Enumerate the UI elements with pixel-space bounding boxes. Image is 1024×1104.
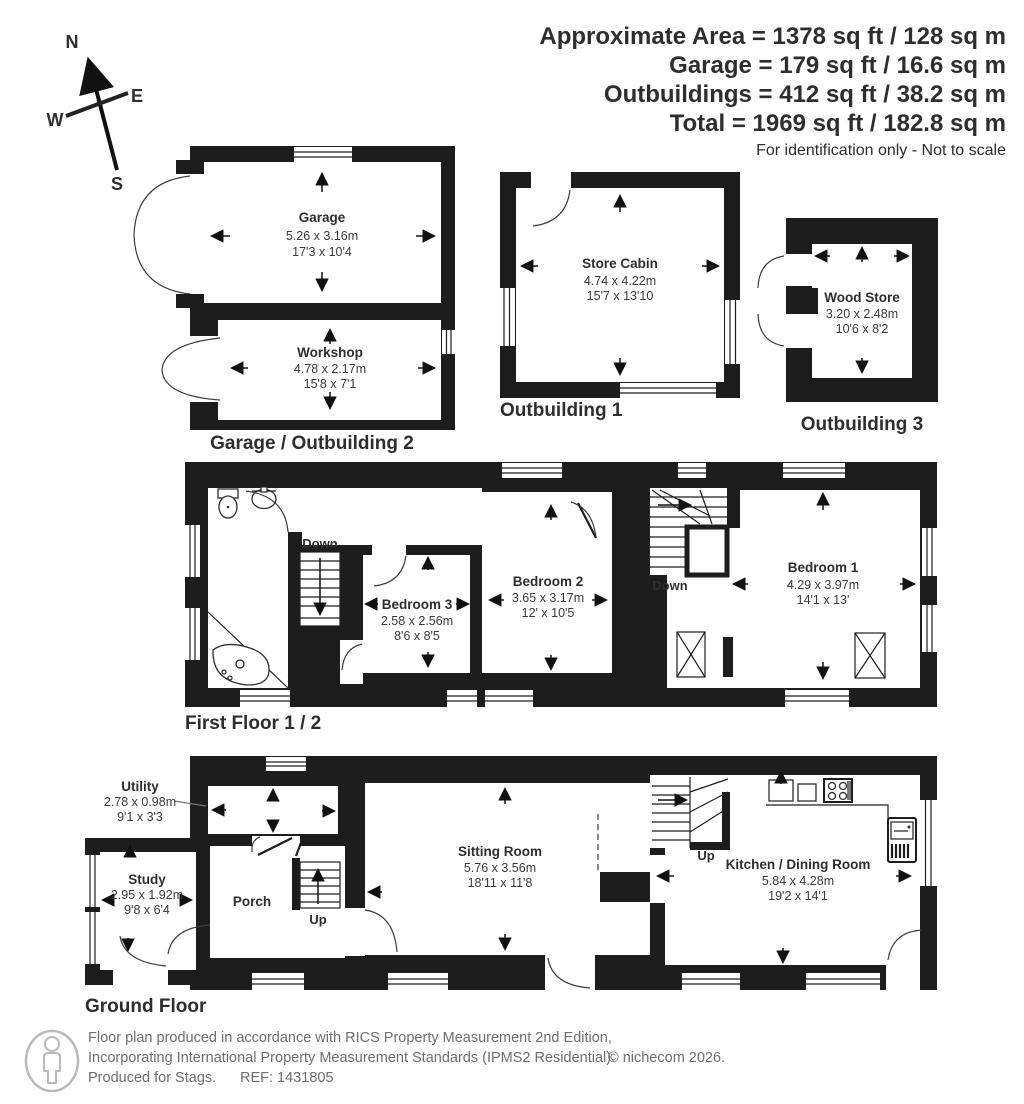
wood-store-door-arc — [758, 256, 784, 288]
window — [783, 463, 845, 478]
window — [252, 973, 304, 990]
first-floor-label: First Floor 1 / 2 — [185, 713, 321, 734]
window — [785, 690, 849, 707]
outbuilding3-plan: Wood Store 3.20 x 2.48m 10'6 x 8'2 Outbu… — [758, 218, 938, 435]
kitchen-metric-label: 5.84 x 4.28m — [762, 874, 834, 888]
approx-area-line: Approximate Area = 1378 sq ft / 128 sq m — [539, 23, 1006, 50]
outbuilding1-plan: Store Cabin 4.74 x 4.22m 15'7 x 13'10 Ou… — [499, 168, 741, 421]
garage-block-label: Garage / Outbuilding 2 — [210, 433, 414, 454]
window — [85, 912, 100, 964]
window — [447, 690, 477, 707]
bedroom3-imperial-label: 8'6 x 8'5 — [394, 629, 440, 643]
window — [678, 463, 706, 478]
store-cabin-imperial-label: 15'7 x 13'10 — [587, 289, 654, 303]
wardrobe-box — [855, 633, 885, 678]
window — [806, 973, 880, 990]
ground-floor-label: Ground Floor — [85, 996, 207, 1017]
bedroom2-imperial-label: 12' x 10'5 — [522, 606, 575, 620]
toilet-icon — [218, 489, 238, 518]
window — [266, 757, 306, 771]
outbuildings-area-line: Outbuildings = 412 sq ft / 38.2 sq m — [604, 81, 1006, 108]
floorplan-canvas: N E W S Approximate Area = 1378 sq ft / … — [0, 0, 1024, 1104]
window — [682, 973, 740, 990]
utility-metric-label: 2.78 x 0.98m — [104, 795, 176, 809]
kitchen-name-label: Kitchen / Dining Room — [726, 857, 871, 872]
window — [240, 690, 290, 707]
garage-outbuilding2-plan: Garage 5.26 x 3.16m 17'3 x 10'4 Workshop… — [134, 146, 456, 454]
workshop-name-label: Workshop — [297, 345, 363, 360]
floorplan-page: N E W S Approximate Area = 1378 sq ft / … — [0, 0, 1024, 1104]
study-imperial-label: 9'8 x 6'4 — [124, 903, 170, 917]
bedroom1-name-label: Bedroom 1 — [788, 560, 859, 575]
study-metric-label: 2.95 x 1.92m — [111, 888, 183, 902]
sink-unit-icon — [888, 818, 916, 862]
garage-door-arc — [134, 176, 190, 235]
area-summary: Approximate Area = 1378 sq ft / 128 sq m… — [539, 23, 1006, 159]
disclaimer-line: For identification only - Not to scale — [756, 142, 1006, 159]
bedroom2-metric-label: 3.65 x 3.17m — [512, 591, 584, 605]
window — [725, 300, 741, 364]
footer-line2: Incorporating International Property Mea… — [88, 1050, 615, 1066]
first-floor-plan: Down Down — [185, 462, 937, 734]
wood-store-imperial-label: 10'6 x 8'2 — [836, 322, 889, 336]
wood-store-metric-label: 3.20 x 2.48m — [826, 307, 898, 321]
total-area-line: Total = 1969 sq ft / 182.8 sq m — [670, 110, 1006, 137]
sitting-name-label: Sitting Room — [458, 844, 542, 859]
window — [85, 855, 100, 907]
store-cabin-metric-label: 4.74 x 4.22m — [584, 274, 656, 288]
outbuilding1-label: Outbuilding 1 — [500, 400, 623, 421]
study-name-label: Study — [128, 872, 166, 887]
window — [185, 525, 200, 577]
garage-name-label: Garage — [299, 210, 346, 225]
person-scale-icon — [26, 1031, 78, 1091]
window — [922, 528, 937, 576]
footer: Floor plan produced in accordance with R… — [26, 1030, 725, 1091]
compass-south: S — [111, 174, 123, 194]
window — [294, 147, 352, 162]
window — [502, 463, 562, 478]
utility-name-label: Utility — [121, 779, 159, 794]
bedroom1-imperial-label: 14'1 x 13' — [797, 593, 850, 607]
window — [388, 973, 448, 990]
garage-door-arc — [134, 235, 190, 294]
footer-ref: REF: 1431805 — [240, 1070, 334, 1086]
sitting-metric-label: 5.76 x 3.56m — [464, 861, 536, 875]
window — [442, 330, 456, 354]
bedroom2-name-label: Bedroom 2 — [513, 574, 584, 589]
wardrobe-box — [677, 632, 705, 677]
bedroom3-metric-label: 2.58 x 2.56m — [381, 614, 453, 628]
kitchen-imperial-label: 19'2 x 14'1 — [768, 889, 828, 903]
outbuilding3-label: Outbuilding 3 — [801, 414, 923, 435]
wood-store-door-arc — [758, 314, 784, 346]
porch-name-label: Porch — [233, 894, 271, 909]
compass-west: W — [47, 110, 64, 130]
garage-imperial-label: 17'3 x 10'4 — [292, 245, 352, 259]
footer-produced: Produced for Stags. — [88, 1070, 216, 1086]
bedroom1-metric-label: 4.29 x 3.97m — [787, 578, 859, 592]
footer-copyright: © nichecom 2026. — [608, 1050, 725, 1066]
garage-area-line: Garage = 179 sq ft / 16.6 sq m — [669, 52, 1006, 79]
bedroom3-name-label: Bedroom 3 — [382, 597, 453, 612]
window — [185, 608, 200, 660]
footer-line1: Floor plan produced in accordance with R… — [88, 1030, 612, 1046]
sitting-imperial-label: 18'11 x 11'8 — [468, 876, 533, 890]
wood-store-name-label: Wood Store — [824, 290, 900, 305]
workshop-imperial-label: 15'8 x 7'1 — [304, 377, 357, 391]
stairs-down-right-label: Down — [652, 578, 687, 593]
window — [922, 605, 937, 652]
ground-floor-plan: Utility 2.78 x 0.98m 9'1 x 3'3 Study 2.9… — [85, 756, 937, 1017]
store-cabin-name-label: Store Cabin — [582, 256, 658, 271]
window — [920, 800, 937, 886]
utility-imperial-label: 9'1 x 3'3 — [117, 810, 163, 824]
compass-east: E — [131, 86, 143, 106]
compass-north: N — [66, 32, 79, 52]
stairs-up-kitchen-label: Up — [697, 848, 714, 863]
workshop-metric-label: 4.78 x 2.17m — [294, 362, 366, 376]
compass-rose: N E W S — [47, 32, 144, 194]
window — [499, 288, 515, 346]
window — [620, 383, 716, 398]
hob-icon — [824, 779, 852, 802]
stairs-up-porch-label: Up — [309, 912, 326, 927]
window — [485, 690, 533, 707]
stairs-down-left-label: Down — [302, 536, 337, 551]
garage-metric-label: 5.26 x 3.16m — [286, 229, 358, 243]
